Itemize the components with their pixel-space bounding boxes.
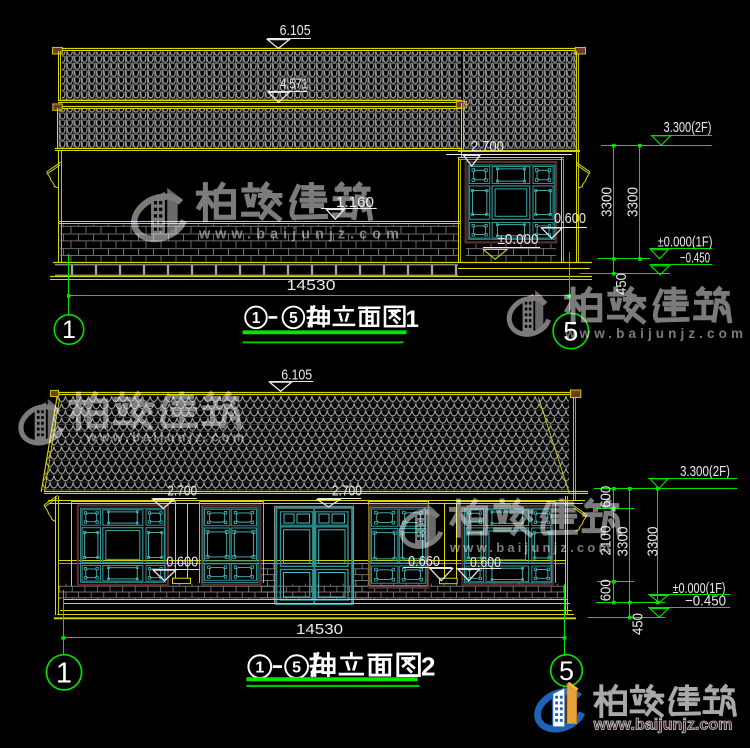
svg-text:2.700: 2.700 [332, 483, 362, 500]
svg-text:2.700: 2.700 [471, 138, 504, 155]
svg-text:3300: 3300 [625, 187, 641, 217]
svg-text:1: 1 [62, 316, 76, 344]
svg-text:www.baijunjz.com: www.baijunjz.com [592, 717, 732, 734]
svg-text:450: 450 [631, 613, 647, 635]
svg-text:1: 1 [56, 657, 72, 689]
svg-text:0.600: 0.600 [554, 210, 586, 227]
svg-text:3.300(2F): 3.300(2F) [664, 119, 712, 136]
svg-text:2: 2 [421, 652, 435, 682]
svg-text:6.105: 6.105 [280, 22, 311, 39]
svg-text:14530: 14530 [287, 277, 336, 294]
svg-text:3300: 3300 [599, 187, 615, 217]
svg-text:2.700: 2.700 [167, 483, 197, 500]
svg-text:3300: 3300 [646, 527, 662, 557]
svg-text:6.105: 6.105 [281, 366, 312, 383]
svg-text:1: 1 [252, 310, 261, 327]
svg-text:14530: 14530 [296, 621, 343, 638]
svg-text:600: 600 [598, 579, 614, 601]
svg-text:5: 5 [292, 659, 301, 676]
svg-text:4.571: 4.571 [280, 76, 308, 93]
svg-text:0.600: 0.600 [166, 553, 198, 570]
svg-text:5: 5 [559, 656, 574, 686]
svg-text:3.300(2F): 3.300(2F) [680, 463, 730, 480]
svg-text:1: 1 [406, 306, 419, 333]
svg-text:1: 1 [255, 659, 264, 676]
svg-text:±0.000: ±0.000 [498, 231, 539, 248]
svg-text:5: 5 [289, 310, 298, 327]
